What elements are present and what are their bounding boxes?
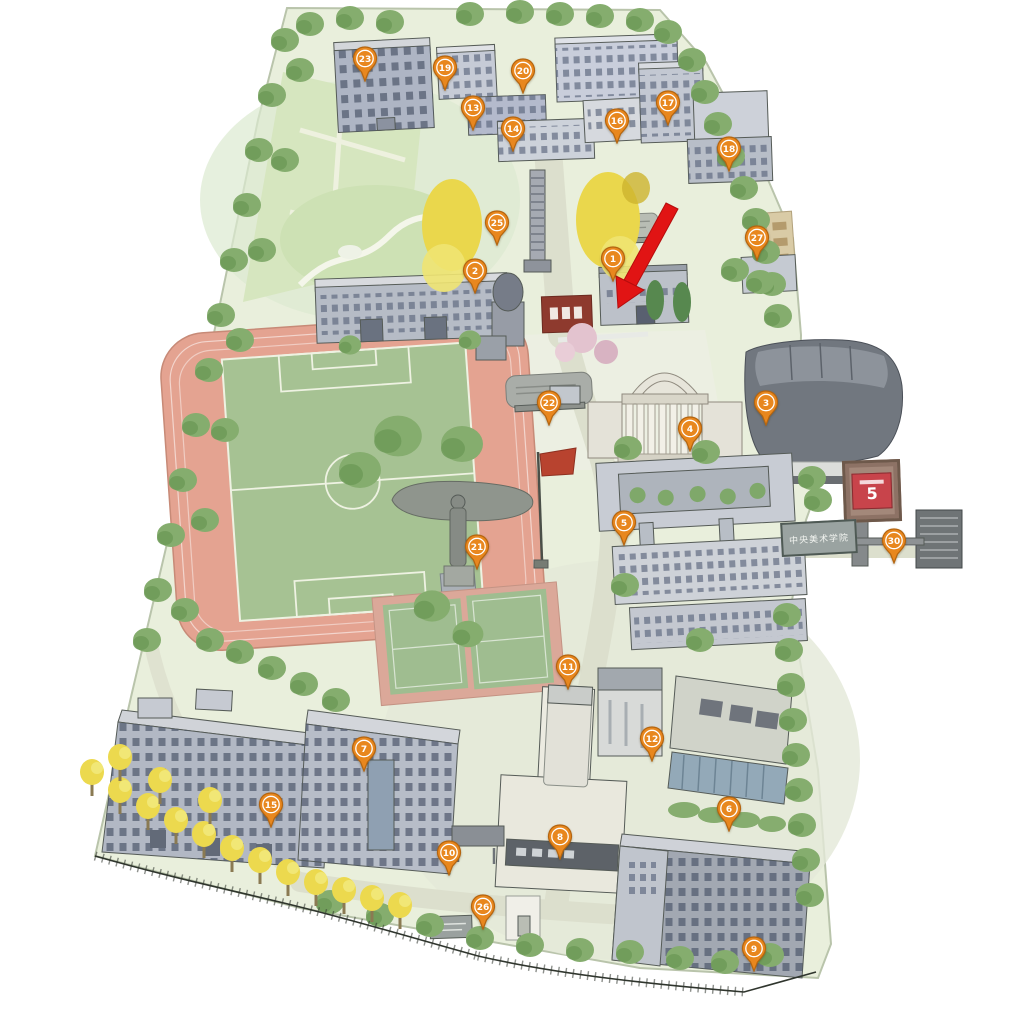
svg-text:4: 4 [687,425,693,435]
svg-text:11: 11 [562,663,575,673]
svg-text:1: 1 [610,255,616,265]
svg-text:21: 21 [471,543,484,553]
map-pin-26[interactable]: 26 [470,894,496,930]
building-topleft-dorm [334,38,435,133]
map-pin-20[interactable]: 20 [510,58,536,94]
map-pin-11[interactable]: 11 [555,654,581,690]
map-pin-9[interactable]: 9 [741,936,767,972]
statue-thinker [492,273,524,346]
building-5-red-plate: 5 [851,472,892,509]
svg-text:26: 26 [477,903,490,913]
map-pin-1[interactable]: 1 [600,246,626,282]
map-pin-10[interactable]: 10 [436,840,462,876]
building-5-number-sign: 5 [842,459,902,523]
svg-text:15: 15 [265,801,278,811]
svg-text:18: 18 [723,145,736,155]
svg-text:13: 13 [467,104,480,114]
svg-text:25: 25 [491,219,504,229]
svg-text:16: 16 [611,117,624,127]
svg-text:8: 8 [557,833,563,843]
map-pin-15[interactable]: 15 [258,792,284,828]
map-pin-18[interactable]: 18 [716,136,742,172]
map-pin-7[interactable]: 7 [351,736,377,772]
map-pin-2[interactable]: 2 [462,258,488,294]
svg-text:20: 20 [517,67,530,77]
map-pin-4[interactable]: 4 [677,416,703,452]
map-pin-14[interactable]: 14 [500,116,526,152]
svg-text:22: 22 [543,399,556,409]
svg-text:6: 6 [726,805,732,815]
svg-text:3: 3 [763,399,769,409]
map-pin-22[interactable]: 22 [536,390,562,426]
svg-text:23: 23 [359,55,372,65]
map-pin-16[interactable]: 16 [604,108,630,144]
map-pin-12[interactable]: 12 [639,726,665,762]
svg-text:30: 30 [888,537,901,547]
svg-text:9: 9 [751,945,757,955]
campus-map-screenshot: 5 中央美术学院 2319201314161718252127224353021… [0,0,1024,1024]
svg-text:12: 12 [646,735,659,745]
map-pin-8[interactable]: 8 [547,824,573,860]
svg-text:7: 7 [361,745,367,755]
svg-text:19: 19 [439,64,452,74]
map-pin-6[interactable]: 6 [716,796,742,832]
map-pin-23[interactable]: 23 [352,46,378,82]
map-pin-3[interactable]: 3 [753,390,779,426]
svg-text:5: 5 [621,519,627,529]
map-pin-19[interactable]: 19 [432,55,458,91]
campus-name-sign: 中央美术学院 [780,519,858,557]
building-number: 5 [866,486,878,502]
map-pin-21[interactable]: 21 [464,534,490,570]
map-pin-30[interactable]: 30 [881,528,907,564]
map-pin-13[interactable]: 13 [460,95,486,131]
map-pin-5[interactable]: 5 [611,510,637,546]
svg-text:10: 10 [443,849,456,859]
map-pin-27[interactable]: 27 [744,225,770,261]
map-pin-25[interactable]: 25 [484,210,510,246]
svg-text:27: 27 [751,234,764,244]
svg-text:14: 14 [507,125,520,135]
svg-text:17: 17 [662,99,675,109]
campus-name-text: 中央美术学院 [789,530,850,546]
map-pin-17[interactable]: 17 [655,90,681,126]
svg-text:2: 2 [472,267,478,277]
